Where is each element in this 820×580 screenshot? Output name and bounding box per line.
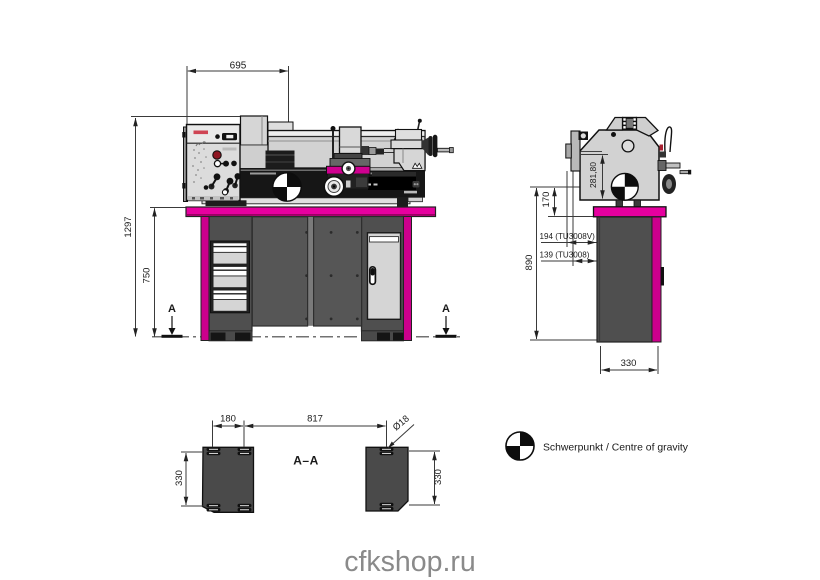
svg-text:890: 890 bbox=[524, 255, 535, 271]
svg-text:A–A: A–A bbox=[293, 454, 319, 468]
svg-text:139 (TU3008): 139 (TU3008) bbox=[540, 251, 590, 260]
svg-text:170: 170 bbox=[541, 192, 552, 208]
svg-text:Schwerpunkt / Centre of gravit: Schwerpunkt / Centre of gravity bbox=[543, 443, 689, 454]
svg-text:1297: 1297 bbox=[123, 216, 134, 237]
svg-text:cfkshop.ru: cfkshop.ru bbox=[344, 546, 475, 578]
svg-text:330: 330 bbox=[433, 469, 444, 485]
svg-text:281,80: 281,80 bbox=[588, 162, 598, 188]
svg-text:695: 695 bbox=[230, 61, 247, 72]
svg-text:A: A bbox=[442, 303, 450, 315]
svg-text:330: 330 bbox=[174, 470, 185, 486]
svg-text:817: 817 bbox=[307, 414, 323, 425]
svg-text:750: 750 bbox=[142, 268, 153, 284]
svg-text:A: A bbox=[168, 303, 176, 315]
svg-text:194 (TU3008V): 194 (TU3008V) bbox=[540, 232, 596, 241]
svg-text:180: 180 bbox=[220, 414, 236, 425]
svg-text:330: 330 bbox=[621, 358, 637, 369]
